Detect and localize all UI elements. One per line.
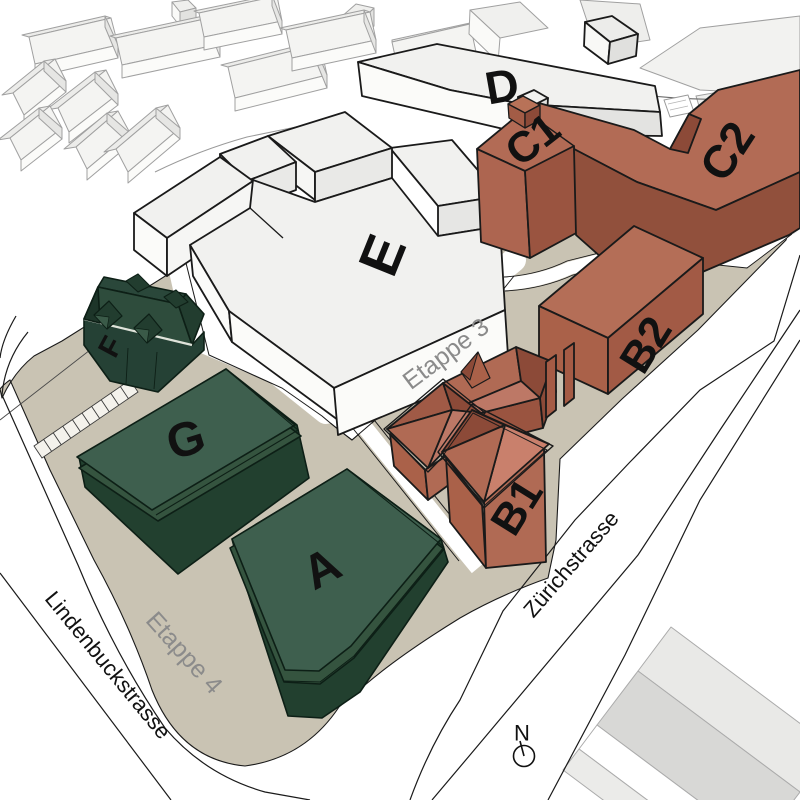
svg-text:N: N bbox=[514, 721, 530, 746]
